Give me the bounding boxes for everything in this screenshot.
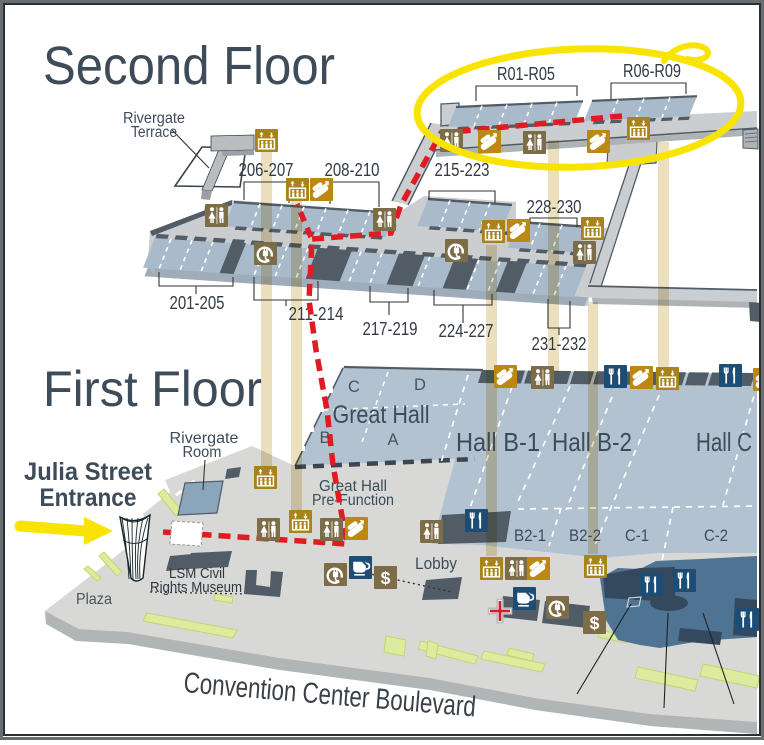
svg-text:Hall B-1: Hall B-1 <box>456 427 540 457</box>
svg-text:Great Hall: Great Hall <box>333 401 430 429</box>
svg-text:Room: Room <box>183 444 222 461</box>
svg-text:First Floor: First Floor <box>43 361 262 417</box>
svg-text:Plaza: Plaza <box>76 591 112 608</box>
svg-text:Terrace: Terrace <box>131 124 177 141</box>
svg-text:231-232: 231-232 <box>532 333 587 354</box>
svg-text:224-227: 224-227 <box>439 320 494 341</box>
svg-text:Hall B-2: Hall B-2 <box>552 427 632 457</box>
svg-text:C: C <box>348 378 360 396</box>
svg-text:R06-R09: R06-R09 <box>623 60 681 81</box>
svg-text:Hall C: Hall C <box>696 427 752 457</box>
svg-text:D: D <box>414 376 426 394</box>
svg-text:Pre-Function: Pre-Function <box>312 492 394 509</box>
svg-text:R01-R05: R01-R05 <box>497 63 555 84</box>
svg-text:Rights Museum: Rights Museum <box>150 579 242 596</box>
svg-text:Julia Street: Julia Street <box>24 458 153 486</box>
svg-text:206-207: 206-207 <box>239 159 294 180</box>
svg-text:B2-1: B2-1 <box>514 526 546 545</box>
svg-text:208-210: 208-210 <box>325 159 380 180</box>
svg-text:B2-2: B2-2 <box>569 526 601 545</box>
svg-text:215-223: 215-223 <box>435 159 490 180</box>
svg-text:211-214: 211-214 <box>289 303 344 324</box>
svg-text:Entrance: Entrance <box>40 484 137 512</box>
svg-text:Lobby: Lobby <box>415 554 457 573</box>
svg-text:A: A <box>387 431 398 449</box>
svg-text:Second Floor: Second Floor <box>43 36 335 96</box>
svg-text:217-219: 217-219 <box>363 318 418 339</box>
svg-text:201-205: 201-205 <box>170 292 225 313</box>
svg-text:228-230: 228-230 <box>527 196 582 217</box>
svg-text:C-1: C-1 <box>625 526 649 545</box>
svg-text:C-2: C-2 <box>704 526 728 545</box>
